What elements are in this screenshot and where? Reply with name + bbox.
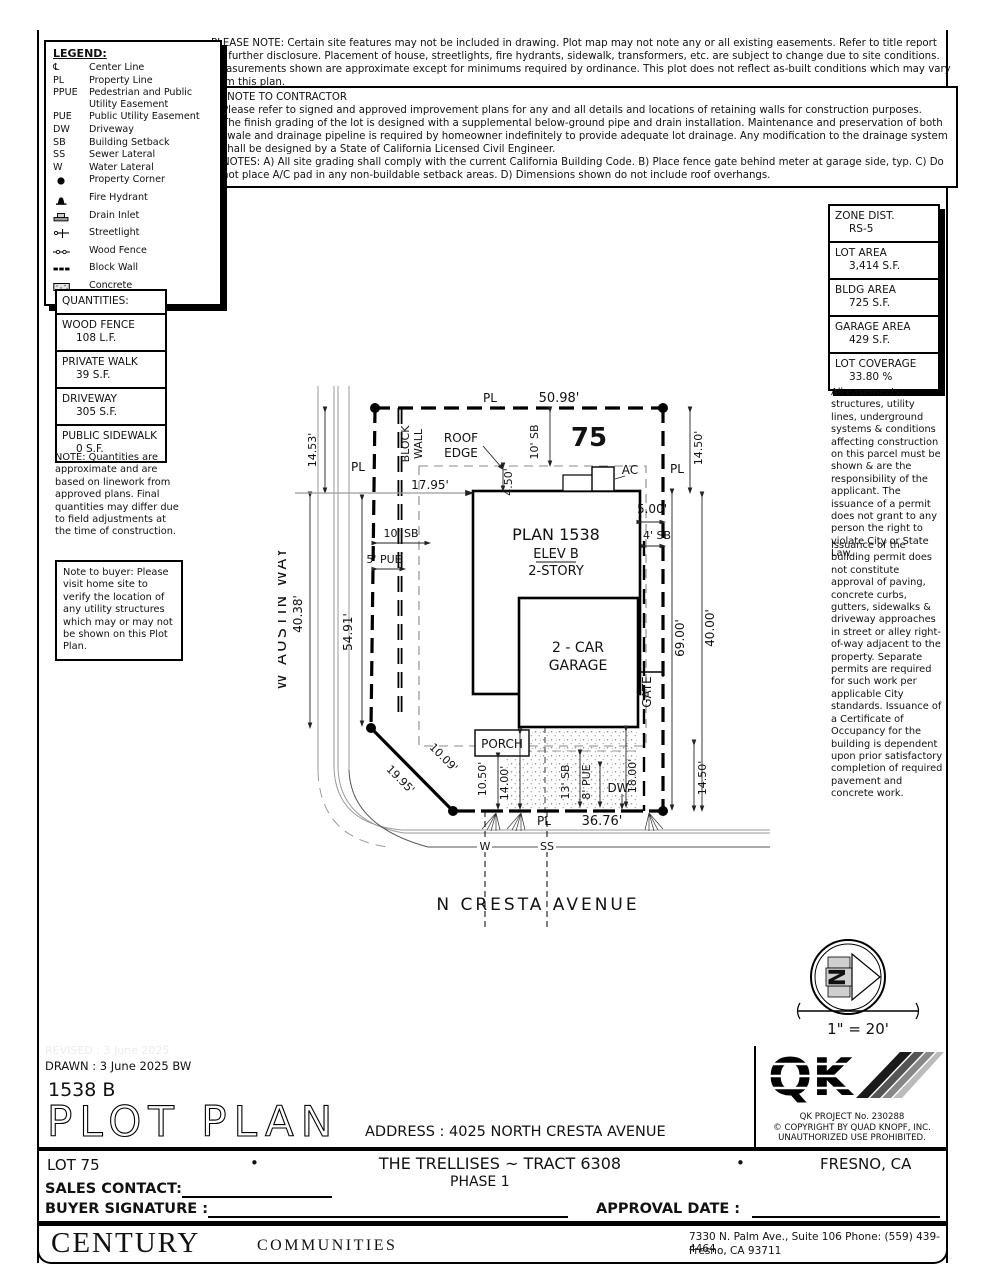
sales-contact-line [182, 1196, 332, 1198]
qk-block: QK QK PROJECT No. 230288 © COPYRIGHT BY … [760, 1048, 944, 1144]
dim-17-95: 17.95' [411, 478, 449, 492]
bldg-area-row: BLDG AREA725 S.F. [830, 280, 938, 317]
revised-ghost-text: REVISED : 3 June 2025 [45, 1044, 169, 1057]
buyer-signature-line [208, 1216, 568, 1218]
block-wall-icon [53, 262, 89, 279]
street-label-south: N CRESTA AVENUE [436, 895, 639, 915]
apron-fan-hatches [482, 813, 663, 831]
wood-fence-row: WOOD FENCE108 L.F. [57, 315, 165, 352]
centerline-symbol: ℄ [53, 62, 89, 74]
buyer-signature-label: BUYER SIGNATURE : [45, 1201, 208, 1217]
contractor-note-line3: NOTES: A) All site grading shall comply … [222, 156, 948, 182]
property-line-west [371, 408, 375, 728]
quantities-table: QUANTITIES: WOOD FENCE108 L.F. PRIVATE W… [55, 289, 167, 463]
dim-36-76: 36.76' [582, 814, 623, 829]
porch-label: PORCH [481, 737, 523, 751]
page-border-left [37, 30, 39, 1263]
quantities-note: NOTE: Quantities are approximate and are… [55, 452, 179, 539]
block-wall-label-1: BLOCK [399, 425, 412, 463]
scale-text: 1" = 20' [827, 1020, 889, 1038]
roof-edge-leader [483, 446, 502, 468]
dim-14-53: 14.53' [306, 433, 319, 468]
plot-plan-sheet: PLEASE NOTE: Certain site features may n… [0, 0, 985, 1276]
permit-note: Issuance of the building permit does not… [831, 540, 945, 801]
dim-10-50: 10.50' [476, 762, 489, 797]
dim-69-00: 69.00' [673, 619, 687, 657]
plan-number-label: PLAN 1538 [512, 525, 600, 544]
garage-area-row: GARAGE AREA429 S.F. [830, 317, 938, 354]
ss-symbol: SS [53, 149, 89, 161]
ac-label: AC [622, 463, 638, 477]
dim-13-sb: 13' SB [559, 764, 572, 799]
lot-text: LOT 75 [47, 1156, 100, 1174]
fire-hydrant-icon [53, 192, 89, 209]
page-border-right [946, 30, 948, 1263]
private-walk-row: PRIVATE WALK39 S.F. [57, 352, 165, 389]
story-label: 2-STORY [528, 564, 584, 579]
property-line-corner-cut [371, 728, 453, 811]
legend-box: LEGEND: ℄Center Line PLProperty Line PPU… [44, 40, 222, 306]
dim-40-00: 40.00' [703, 609, 717, 647]
drawn-by-text: DRAWN : 3 June 2025 BW [45, 1059, 191, 1073]
contractor-note-line2: The finish grading of the lot is designe… [222, 117, 948, 156]
easement-note: All easements, structures, utility lines… [831, 387, 943, 561]
bullet-1: • [250, 1154, 259, 1172]
north-letter: N [826, 968, 851, 986]
address-text: ADDRESS : 4025 NORTH CRESTA AVENUE [365, 1124, 666, 1140]
phase-text: PHASE 1 [450, 1174, 510, 1190]
pl-label-left: PL [351, 460, 365, 474]
elev-label: ELEV B [533, 547, 579, 562]
dim-4-sb: 4' SB [643, 529, 671, 542]
street-label-west: W AUSTIN WAY [278, 546, 290, 690]
streetlight-icon [53, 227, 89, 244]
buyer-note-box: Note to buyer: Please visit home site to… [55, 560, 183, 661]
scale-bar: 1" = 20' [788, 1000, 928, 1040]
qk-logo: QK [760, 1048, 944, 1104]
zone-dist-row: ZONE DIST.RS-5 [830, 206, 938, 243]
titleblock-divider-top [37, 1147, 948, 1151]
block-wall-label-2: WALL [412, 428, 425, 459]
dw-symbol: DW [53, 124, 89, 136]
contractor-note-line1: Please refer to signed and approved impr… [222, 104, 948, 117]
pl-label-right: PL [670, 462, 684, 476]
contractor-note-box: *NOTE TO CONTRACTOR Please refer to sign… [212, 86, 958, 188]
property-corner-icon [53, 174, 89, 191]
dim-10-sb-left: 10' SB [383, 527, 418, 540]
dim-4-50: 4.50' [502, 468, 515, 496]
tract-text: THE TRELLISES ~ TRACT 6308 [335, 1154, 665, 1173]
qk-prohibited: UNAUTHORIZED USE PROHIBITED. [760, 1133, 944, 1144]
pl-label-top: PL [483, 391, 497, 405]
sales-contact-label: SALES CONTACT: [45, 1181, 182, 1197]
house-footprint [473, 467, 640, 756]
approval-date-line [752, 1216, 940, 1218]
bullet-2: • [736, 1154, 745, 1172]
dim-14-50-tr: 14.50' [692, 431, 705, 466]
lot-area-row: LOT AREA3,414 S.F. [830, 243, 938, 280]
dim-8-pue: 8' PUE [580, 764, 593, 799]
builder-name-2: COMMUNITIES [257, 1237, 397, 1255]
dim-5-00: 5.00' [637, 502, 667, 516]
qk-project-number: QK PROJECT No. 230288 [760, 1112, 944, 1123]
dim-18-00: 18.00' [626, 759, 639, 794]
sb-symbol: SB [53, 137, 89, 149]
qk-divider [754, 1046, 756, 1148]
builder-footer: CENTURY COMMUNITIES 7330 N. Palm Ave., S… [37, 1226, 948, 1264]
pl-label-bottom: PL [537, 814, 551, 828]
dim-5-pue: 5' PUE [366, 553, 401, 566]
site-plan-drawing: PL 50.98' 75 PL PL 14.53' 17.95' 10' SB … [278, 386, 770, 946]
water-lateral-label: W [480, 840, 491, 853]
pl-symbol: PL [53, 75, 89, 87]
roof-edge-label-1: ROOF [444, 431, 478, 445]
garage-label-1: 2 - CAR [552, 640, 604, 656]
gate-label: GATE [640, 676, 654, 708]
wood-fence-icon [53, 245, 89, 262]
svg-text:PLOT PLAN: PLOT PLAN [47, 1097, 339, 1146]
garage-label-2: GARAGE [549, 658, 608, 674]
drain-inlet-icon [53, 210, 89, 227]
lot-coverage-row: LOT COVERAGE33.80 % [830, 354, 938, 389]
contractor-note-title: *NOTE TO CONTRACTOR [222, 91, 948, 104]
builder-name: CENTURY [51, 1227, 200, 1260]
dim-14-00: 14.00' [498, 766, 511, 801]
curb-return [349, 770, 428, 847]
please-note-text: PLEASE NOTE: Certain site features may n… [211, 37, 953, 89]
sewer-lateral-label: SS [540, 840, 554, 853]
zoning-table: ZONE DIST.RS-5 LOT AREA3,414 S.F. BLDG A… [828, 204, 940, 391]
driveway-row: DRIVEWAY305 S.F. [57, 389, 165, 426]
legend-title: LEGEND: [53, 47, 213, 60]
ppue-symbol: PPUE [53, 87, 89, 99]
sheet-title: PLOT PLAN [45, 1096, 395, 1146]
qk-copyright: © COPYRIGHT BY QUAD KNOPF, INC. [760, 1123, 944, 1134]
dim-54-91: 54.91' [341, 613, 355, 651]
approval-date-label: APPROVAL DATE : [596, 1201, 740, 1217]
pue-symbol: PUE [53, 111, 89, 123]
roof-edge-label-2: EDGE [444, 446, 478, 460]
dim-50-98: 50.98' [539, 391, 580, 406]
city-text: FRESNO, CA [820, 1155, 911, 1173]
w-symbol: W [53, 162, 89, 174]
dim-10-sb-top: 10' SB [528, 424, 541, 459]
quantities-title: QUANTITIES: [57, 291, 165, 315]
ac-unit [592, 467, 614, 491]
dim-14-50-br: 14.50' [696, 761, 709, 796]
builder-address-2: Fresno, CA 93711 [689, 1245, 781, 1257]
lot-number: 75 [571, 423, 607, 453]
dim-40-38: 40.38' [291, 595, 305, 633]
